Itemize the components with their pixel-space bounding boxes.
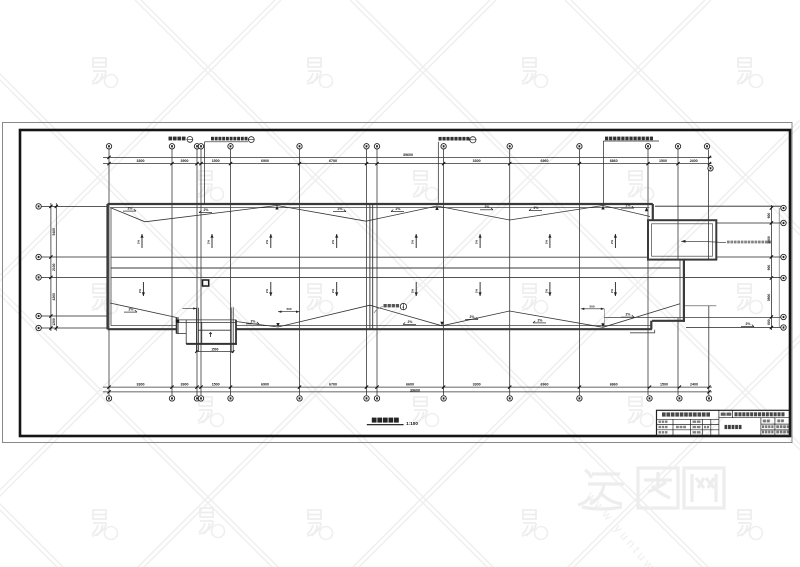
svg-text:1500: 1500 [659,159,667,163]
svg-text:2%: 2% [136,239,140,244]
svg-text:2%: 2% [411,288,415,293]
svg-text:2%: 2% [331,239,335,244]
svg-text:6600: 6600 [406,383,414,387]
svg-text:600: 600 [767,319,771,325]
svg-text:2%: 2% [411,239,415,244]
svg-text:2%: 2% [204,208,209,212]
svg-text:2%: 2% [251,319,256,323]
svg-text:1500: 1500 [211,347,218,351]
svg-text:2100: 2100 [52,263,56,271]
svg-text:2%: 2% [626,204,631,208]
svg-text:2%: 2% [475,288,479,293]
svg-text:2%: 2% [408,320,413,324]
svg-text:900: 900 [767,265,771,271]
svg-text:1500: 1500 [212,383,220,387]
svg-text:2%: 2% [485,205,490,209]
svg-text:600: 600 [767,213,771,219]
svg-text:2400: 2400 [690,159,698,163]
svg-text:500: 500 [589,304,594,308]
svg-text:6860: 6860 [610,383,618,387]
svg-text:6860: 6860 [610,159,618,163]
svg-text:2%: 2% [534,206,539,210]
svg-text:2%: 2% [129,308,134,312]
svg-text:6900: 6900 [261,383,269,387]
svg-text:3300: 3300 [473,383,481,387]
svg-text:6960: 6960 [541,159,549,163]
svg-text:2%: 2% [265,288,269,293]
svg-text:2%: 2% [128,207,133,211]
svg-text:6960: 6960 [541,383,549,387]
svg-text:2400: 2400 [690,383,698,387]
svg-text:2%: 2% [475,239,479,244]
svg-text:6700: 6700 [329,383,337,387]
svg-text:6900: 6900 [261,159,269,163]
svg-text:39600: 39600 [403,153,413,157]
svg-text:6700: 6700 [329,159,337,163]
svg-text:2%: 2% [610,288,614,293]
svg-text:5400: 5400 [52,228,56,236]
svg-text:1:100: 1:100 [406,421,418,426]
svg-text:2%: 2% [331,288,335,293]
svg-text:39600: 39600 [410,388,420,392]
svg-text:2%: 2% [138,288,142,293]
svg-text:2%: 2% [610,239,614,244]
svg-text:2%: 2% [626,313,631,317]
svg-text:3900: 3900 [767,294,771,302]
svg-text:3300: 3300 [473,159,481,163]
svg-text:2%: 2% [206,239,210,244]
svg-text:1500: 1500 [212,159,220,163]
svg-text:3300: 3300 [137,383,145,387]
svg-text:2%: 2% [396,207,401,211]
svg-text:3300: 3300 [137,159,145,163]
svg-text:2%: 2% [746,322,751,326]
svg-text:2%: 2% [544,239,548,244]
svg-text:2%: 2% [544,288,548,293]
svg-text:2%: 2% [338,207,343,211]
svg-text:4200: 4200 [52,293,56,301]
svg-text:n: n [403,305,405,309]
svg-text:1200: 1200 [52,318,56,326]
svg-text:2%: 2% [470,315,475,319]
svg-text:1500: 1500 [660,383,668,387]
svg-text:500: 500 [286,307,291,311]
svg-text:3900: 3900 [181,383,189,387]
svg-text:3900: 3900 [181,159,189,163]
svg-text:2%: 2% [538,318,543,322]
svg-text:2%: 2% [265,239,269,244]
